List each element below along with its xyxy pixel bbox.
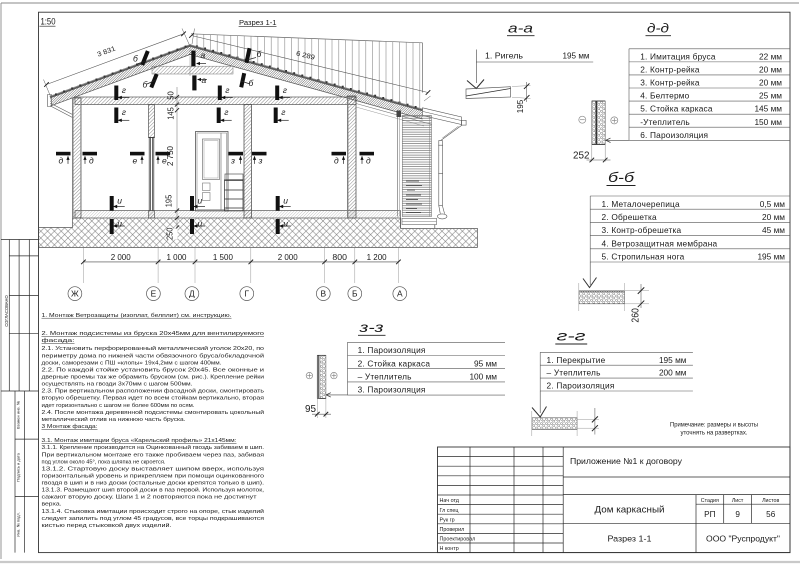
- svg-text:Разрез 1-1: Разрез 1-1: [239, 18, 277, 27]
- svg-text:периметру дома по нижней части: периметру дома по нижней части обвязочно…: [42, 352, 265, 359]
- svg-text:з: з: [258, 156, 263, 166]
- svg-text:20 мм: 20 мм: [759, 64, 782, 74]
- svg-text:следует запилить под углом 45: следует запилить под углом 45 градусов, …: [42, 516, 265, 522]
- svg-text:195 мм: 195 мм: [563, 51, 590, 61]
- svg-text:г-г: г-г: [557, 329, 587, 344]
- svg-text:д: д: [334, 156, 339, 166]
- svg-text:осуществлять на гвозди 3х70мм: осуществлять на гвозди 3х70мм с шагом 50…: [42, 382, 193, 388]
- svg-text:д: д: [59, 156, 64, 166]
- svg-text:а: а: [202, 75, 207, 85]
- svg-text:РП: РП: [704, 510, 715, 519]
- svg-text:В: В: [321, 289, 327, 299]
- svg-text:г: г: [225, 85, 229, 95]
- svg-text:уточнять на развертках.: уточнять на развертках.: [681, 430, 748, 437]
- svg-text:1. Металочерепица: 1. Металочерепица: [602, 199, 681, 209]
- svg-text:100 мм: 100 мм: [469, 372, 497, 382]
- svg-text:800: 800: [332, 252, 347, 262]
- svg-text:Проверил: Проверил: [440, 527, 465, 533]
- svg-text:Проектировал: Проектировал: [440, 537, 476, 543]
- svg-text:3. Контр-рейка: 3. Контр-рейка: [640, 78, 700, 88]
- svg-text:3.1. Монтаж имитации бруса «Ка: 3.1. Монтаж имитации бруса «Карельский п…: [42, 437, 237, 444]
- svg-text:г: г: [122, 107, 126, 117]
- svg-text:20 мм: 20 мм: [762, 212, 785, 222]
- svg-text:1. Пароизоляция: 1. Пароизоляция: [358, 345, 426, 355]
- svg-text:2. Стойка каркаса: 2. Стойка каркаса: [358, 358, 431, 368]
- svg-text:– Утеплитель: – Утеплитель: [358, 372, 412, 382]
- svg-text:25 мм: 25 мм: [759, 91, 782, 101]
- svg-text:Взамен инв. №: Взамен инв. №: [16, 401, 21, 429]
- svg-text:3.1.1. Крепление производится: 3.1.1. Крепление производится на Оцинков…: [42, 444, 265, 451]
- svg-text:95: 95: [305, 403, 316, 415]
- svg-text:металлический отлив на нижнюю: металлический отлив на нижнюю часть брус…: [42, 416, 186, 423]
- svg-text:56: 56: [766, 510, 776, 519]
- svg-text:2. Обрешетка: 2. Обрешетка: [602, 212, 657, 222]
- svg-text:2.2. По каждой стойке установи: 2.2. По каждой стойке установить брусок …: [42, 367, 265, 374]
- svg-text:4. Белтермо: 4. Белтермо: [640, 91, 689, 101]
- svg-text:Г: Г: [245, 289, 250, 299]
- svg-text:1. Имитация бруса: 1. Имитация бруса: [640, 51, 716, 61]
- svg-text:Инв. № подл.: Инв. № подл.: [16, 512, 21, 537]
- svg-text:Разрез 1-1: Разрез 1-1: [608, 534, 652, 544]
- svg-text:Стадия: Стадия: [701, 498, 719, 504]
- svg-text:2. Контр-рейка: 2. Контр-рейка: [640, 64, 700, 74]
- svg-text:9: 9: [735, 510, 740, 519]
- svg-text:з: з: [230, 156, 235, 166]
- svg-text:и: и: [117, 219, 122, 229]
- svg-text:дверные проемы так же обрамить: дверные проемы так же обрамить бруском (…: [42, 374, 265, 381]
- svg-text:195 мм: 195 мм: [757, 252, 785, 262]
- svg-text:2.3. При вертикальном располож: 2.3. При вертикальном расположении фасад…: [42, 388, 265, 395]
- svg-text:20 мм: 20 мм: [759, 78, 782, 88]
- svg-text:1. Ригель: 1. Ригель: [485, 51, 523, 61]
- svg-text:Подпись и дата: Подпись и дата: [16, 452, 21, 482]
- svg-text:е: е: [133, 156, 138, 166]
- svg-text:г: г: [281, 107, 285, 117]
- svg-text:вторую обрешетку. Первая идет: вторую обрешетку. Первая идет по всем ст…: [42, 395, 265, 402]
- svg-text:2 000: 2 000: [111, 252, 131, 262]
- svg-text:4. Ветрозащитная мембрана: 4. Ветрозащитная мембрана: [602, 238, 718, 248]
- svg-text:3. Пароизоляция: 3. Пароизоляция: [358, 385, 426, 395]
- svg-text:и: и: [283, 219, 288, 229]
- svg-text:Н контр: Н контр: [440, 546, 459, 552]
- svg-text:45 мм: 45 мм: [762, 225, 785, 235]
- svg-text:13.1.3. Размещают шип второй д: 13.1.3. Размещают шип второй доски в паз…: [42, 487, 265, 494]
- svg-text:195: 195: [516, 99, 525, 113]
- svg-text:и: и: [198, 196, 203, 206]
- svg-text:Примечание: размеры и высоты: Примечание: размеры и высоты: [670, 422, 758, 429]
- svg-text:95 мм: 95 мм: [474, 358, 497, 368]
- svg-text:-Утеплитель: -Утеплитель: [640, 117, 690, 127]
- svg-text:Рук гр: Рук гр: [440, 517, 455, 523]
- svg-text:гвоздя в шип и в низ доски (ос: гвоздя в шип и в низ доски (остальные до…: [42, 481, 265, 487]
- svg-text:2.1. Установить перфорированны: 2.1. Установить перфорированный металлич…: [42, 345, 265, 352]
- svg-text:верха.: верха.: [42, 502, 62, 508]
- svg-text:145 мм: 145 мм: [754, 104, 782, 114]
- svg-text:250: 250: [166, 227, 175, 240]
- svg-text:1 500: 1 500: [213, 252, 233, 262]
- svg-text:Ж: Ж: [71, 289, 79, 299]
- svg-text:кистью перед стыковкой двух из: кистью перед стыковкой двух изделий.: [42, 522, 172, 529]
- svg-text:горизонтальный уровень и прикр: горизонтальный уровень и прикрепляем при…: [42, 473, 265, 480]
- svg-text:и: и: [198, 219, 203, 229]
- svg-text:22 мм: 22 мм: [759, 51, 782, 61]
- svg-text:д: д: [89, 156, 94, 166]
- svg-text:Листов: Листов: [762, 498, 779, 504]
- svg-text:5. Стропильная нога: 5. Стропильная нога: [602, 252, 685, 262]
- svg-text:252: 252: [573, 149, 590, 161]
- svg-text:195: 195: [165, 194, 174, 207]
- svg-text:1. Перекрытие: 1. Перекрытие: [547, 355, 606, 365]
- svg-text:доски, саморезами с ПШ «клопы»: доски, саморезами с ПШ «клопы» 19х4,2мм …: [42, 360, 222, 366]
- svg-text:1 200: 1 200: [367, 252, 387, 262]
- svg-text:Приложение №1 к договору: Приложение №1 к договору: [570, 456, 683, 466]
- svg-text:под углом около 45°, пока шляп: под углом около 45°, пока шляпка не скро…: [42, 459, 166, 465]
- svg-text:2. Пароизоляция: 2. Пароизоляция: [547, 381, 615, 391]
- svg-text:13.1.4. Стыковка имитации прои: 13.1.4. Стыковка имитации происходит стр…: [42, 508, 265, 515]
- svg-text:а-а: а-а: [508, 21, 533, 36]
- svg-text:200 мм: 200 мм: [659, 368, 687, 378]
- svg-text:3. Контр-обрешетка: 3. Контр-обрешетка: [602, 225, 682, 235]
- svg-text:Д: Д: [189, 289, 195, 299]
- svg-text:1:50: 1:50: [41, 15, 56, 26]
- svg-text:50: 50: [167, 91, 176, 100]
- svg-text:з-з: з-з: [358, 320, 383, 335]
- svg-text:Лист: Лист: [732, 498, 744, 504]
- svg-text:150 мм: 150 мм: [754, 117, 782, 127]
- svg-text:6. Пароизоляция: 6. Пароизоляция: [640, 130, 708, 140]
- svg-text:195 мм: 195 мм: [659, 355, 687, 365]
- svg-text:д: д: [366, 156, 371, 166]
- svg-text:2.4. После монтажа деревянной: 2.4. После монтажа деревянной подсистемы…: [42, 409, 265, 416]
- svg-text:При вертикальном монтаже его т: При вертикальном монтаже его также проби…: [42, 452, 265, 458]
- svg-text:5. Стойка каркаса: 5. Стойка каркаса: [640, 104, 713, 114]
- svg-text:0,5 мм: 0,5 мм: [760, 199, 786, 209]
- svg-text:СОГЛАСОВАНО: СОГЛАСОВАНО: [4, 294, 9, 326]
- svg-text:д-д: д-д: [647, 21, 669, 36]
- svg-text:ООО "Руспродукт": ООО "Руспродукт": [706, 534, 780, 544]
- svg-text:и: и: [283, 196, 288, 206]
- svg-text:260: 260: [631, 308, 642, 323]
- svg-text:идет горизонтально с шагом не: идет горизонтально с шагом не более 600м…: [42, 403, 195, 409]
- svg-text:2 000: 2 000: [278, 252, 298, 262]
- svg-text:Дом каркасный: Дом каркасный: [595, 505, 665, 515]
- svg-text:2 750: 2 750: [166, 145, 175, 166]
- svg-text:1 000: 1 000: [167, 252, 187, 262]
- svg-text:13.1.2. Стартовую доску выстав: 13.1.2. Стартовую доску выставляет шипом…: [42, 466, 265, 472]
- svg-text:Б: Б: [352, 289, 358, 299]
- svg-text:А: А: [397, 289, 403, 299]
- svg-text:б-б: б-б: [608, 170, 635, 185]
- svg-text:а: а: [201, 50, 206, 60]
- svg-text:г: г: [122, 85, 126, 95]
- svg-text:и: и: [117, 196, 122, 206]
- svg-text:г: г: [224, 107, 228, 117]
- svg-text:145: 145: [167, 107, 176, 120]
- svg-text:Е: Е: [151, 289, 157, 299]
- svg-text:сажают вторую доску. Шаги 1 и: сажают вторую доску. Шаги 1 и 2 повторяю…: [42, 495, 257, 501]
- svg-text:Гл спец: Гл спец: [440, 508, 459, 514]
- svg-text:– Утеплитель: – Утеплитель: [547, 368, 601, 378]
- svg-text:г: г: [283, 85, 287, 95]
- svg-text:Нач отд: Нач отд: [440, 498, 460, 504]
